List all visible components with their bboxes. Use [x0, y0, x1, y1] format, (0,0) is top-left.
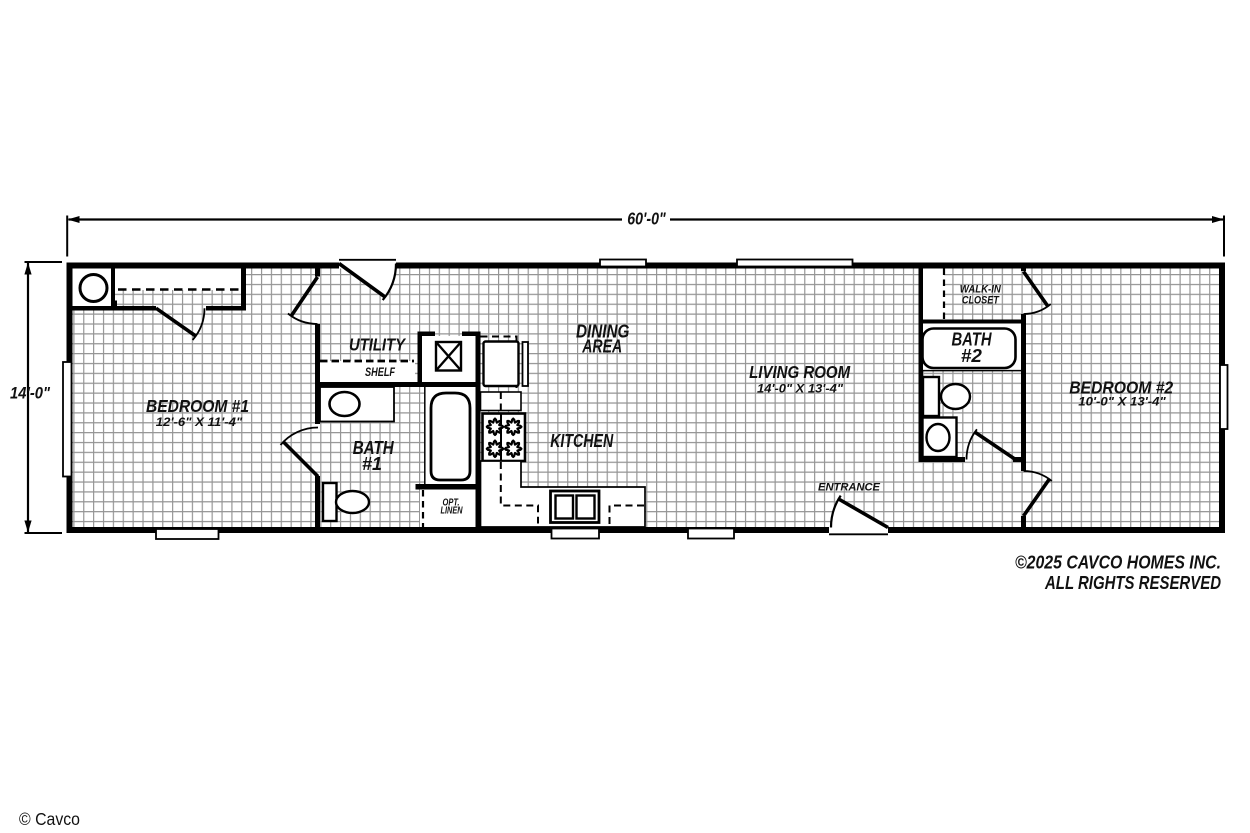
svg-text:SHELF: SHELF [365, 367, 396, 379]
svg-text:BEDROOM #1: BEDROOM #1 [146, 396, 249, 416]
svg-text:KITCHEN: KITCHEN [550, 431, 614, 451]
svg-text:14'-0": 14'-0" [10, 384, 51, 403]
svg-text:10'-0" X 13'-4": 10'-0" X 13'-4" [1078, 395, 1166, 409]
svg-text:#1: #1 [362, 454, 382, 474]
svg-text:60'-0": 60'-0" [627, 209, 666, 229]
svg-text:ENTRANCE: ENTRANCE [818, 482, 880, 494]
svg-text:CLOSET: CLOSET [962, 295, 1000, 307]
svg-text:ALL RIGHTS RESERVED: ALL RIGHTS RESERVED [1044, 572, 1221, 593]
svg-text:14'-0" X 13'-4": 14'-0" X 13'-4" [757, 382, 843, 396]
svg-text:12'-6" X 11'-4": 12'-6" X 11'-4" [156, 415, 243, 429]
svg-text:LINEN: LINEN [441, 505, 463, 517]
svg-text:#2: #2 [961, 346, 982, 366]
svg-text:©2025 CAVCO HOMES INC.: ©2025 CAVCO HOMES INC. [1015, 552, 1221, 573]
svg-text:UTILITY: UTILITY [349, 335, 406, 355]
svg-text:LIVING ROOM: LIVING ROOM [749, 362, 851, 382]
svg-text:AREA: AREA [581, 337, 622, 357]
svg-text:© Cavco: © Cavco [19, 809, 80, 829]
